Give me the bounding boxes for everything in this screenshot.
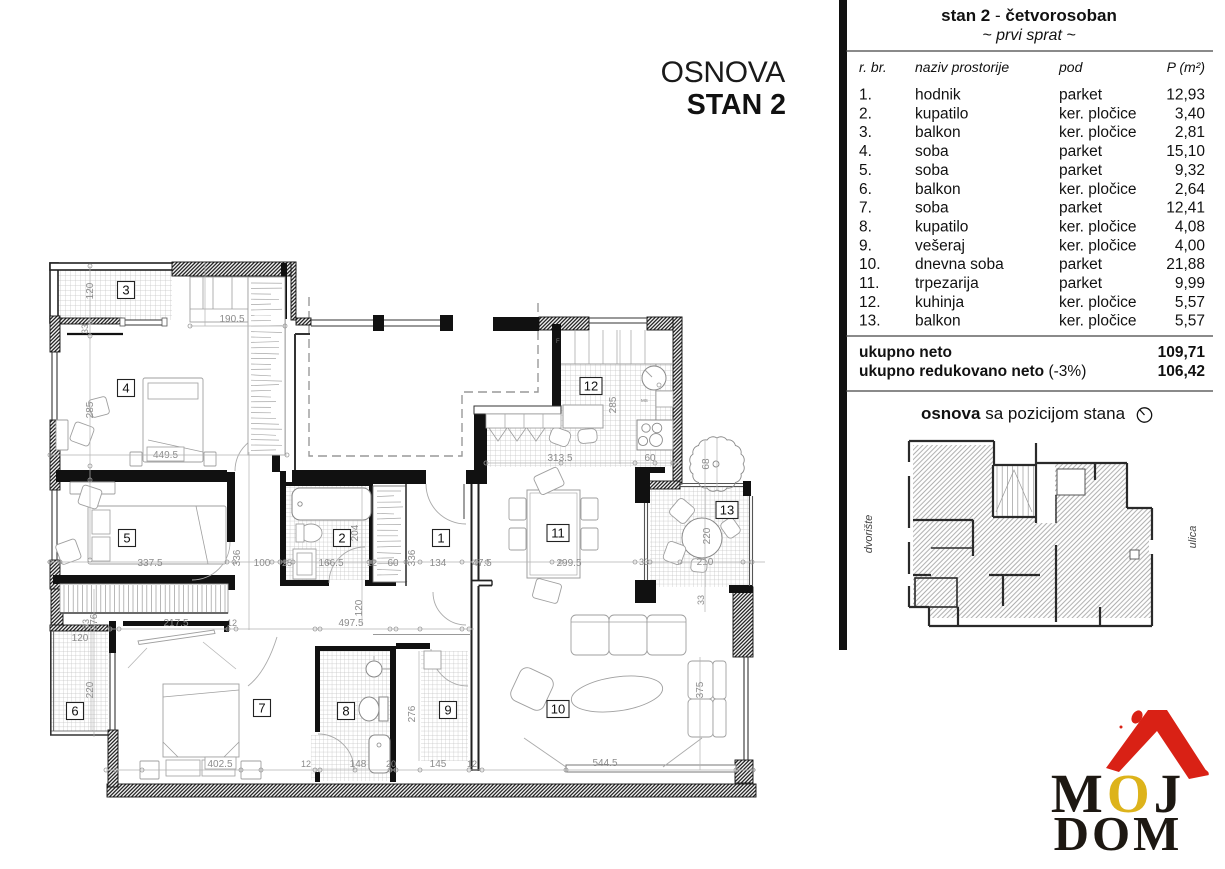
svg-text:7.: 7. [859, 200, 872, 217]
svg-text:3: 3 [122, 283, 129, 298]
svg-text:544.5: 544.5 [592, 758, 617, 769]
svg-text:2,64: 2,64 [1175, 181, 1206, 198]
svg-text:145: 145 [430, 759, 447, 770]
svg-text:4.: 4. [859, 143, 872, 160]
svg-text:ker. pločice: ker. pločice [1059, 124, 1137, 141]
svg-text:60: 60 [644, 453, 656, 464]
svg-text:12.: 12. [859, 294, 881, 311]
svg-text:12: 12 [467, 759, 477, 769]
svg-text:402.5: 402.5 [207, 759, 232, 770]
svg-text:3.: 3. [859, 124, 872, 141]
svg-text:5: 5 [123, 531, 130, 546]
svg-text:kupatilo: kupatilo [915, 219, 968, 236]
svg-text:~ prvi sprat ~: ~ prvi sprat ~ [982, 27, 1075, 44]
svg-text:ukupno redukovano neto (-3%): ukupno redukovano neto (-3%) [859, 363, 1086, 380]
svg-text:STAN 2: STAN 2 [687, 89, 786, 121]
svg-text:DOM: DOM [1054, 806, 1183, 861]
svg-text:21,88: 21,88 [1166, 256, 1205, 273]
svg-text:soba: soba [915, 200, 949, 217]
svg-text:OSNOVA: OSNOVA [661, 56, 786, 89]
svg-text:4: 4 [122, 381, 129, 396]
svg-text:ukupno neto: ukupno neto [859, 344, 952, 361]
svg-text:12,41: 12,41 [1166, 200, 1205, 217]
svg-text:1: 1 [437, 531, 444, 546]
svg-text:F: F [556, 339, 560, 345]
svg-text:4,00: 4,00 [1175, 237, 1206, 254]
svg-text:100: 100 [254, 558, 271, 569]
svg-text:449.5: 449.5 [153, 450, 178, 461]
svg-text:10.: 10. [859, 256, 881, 273]
svg-text:120: 120 [354, 599, 365, 616]
svg-text:ulica: ulica [1187, 526, 1199, 549]
svg-text:parket: parket [1059, 162, 1103, 179]
svg-text:217.5: 217.5 [163, 618, 188, 629]
svg-text:dnevna soba: dnevna soba [915, 256, 1004, 273]
svg-text:12: 12 [227, 618, 237, 628]
svg-text:ker. pločice: ker. pločice [1059, 294, 1137, 311]
svg-text:ker. pločice: ker. pločice [1059, 237, 1137, 254]
svg-text:11.: 11. [859, 275, 879, 292]
svg-text:pod: pod [1058, 59, 1084, 75]
svg-text:120: 120 [72, 633, 89, 644]
svg-text:dvorište: dvorište [863, 515, 875, 554]
svg-text:2.: 2. [859, 105, 872, 122]
svg-text:13.: 13. [859, 313, 881, 330]
svg-text:190.5: 190.5 [219, 314, 244, 325]
svg-text:336: 336 [407, 549, 418, 566]
svg-text:299.5: 299.5 [556, 558, 581, 569]
svg-text:parket: parket [1059, 200, 1103, 217]
svg-text:109,71: 109,71 [1158, 344, 1206, 361]
svg-text:313.5: 313.5 [547, 453, 572, 464]
svg-text:ker. pločice: ker. pločice [1059, 313, 1137, 330]
svg-text:parket: parket [1059, 275, 1103, 292]
svg-text:soba: soba [915, 162, 949, 179]
svg-text:276: 276 [407, 705, 418, 722]
svg-text:ker. pločice: ker. pločice [1059, 219, 1137, 236]
svg-text:12: 12 [367, 558, 377, 568]
svg-text:parket: parket [1059, 87, 1103, 104]
svg-text:9.: 9. [859, 237, 872, 254]
svg-text:vešeraj: vešeraj [915, 237, 965, 254]
svg-text:balkon: balkon [915, 181, 961, 198]
svg-text:hodnik: hodnik [915, 87, 961, 104]
svg-text:5,57: 5,57 [1175, 313, 1205, 330]
svg-text:trpezarija: trpezarija [915, 275, 979, 292]
svg-text:337.5: 337.5 [137, 558, 162, 569]
svg-text:11: 11 [551, 526, 565, 541]
svg-text:25: 25 [282, 558, 292, 568]
svg-text:33: 33 [696, 595, 706, 605]
svg-text:220: 220 [702, 527, 713, 544]
svg-text:8: 8 [342, 704, 349, 719]
svg-text:naziv prostorije: naziv prostorije [915, 59, 1009, 75]
svg-text:60: 60 [387, 558, 399, 569]
svg-text:parket: parket [1059, 143, 1103, 160]
svg-text:13: 13 [720, 503, 734, 518]
svg-text:47.5: 47.5 [472, 558, 492, 569]
svg-text:12: 12 [584, 379, 598, 394]
svg-text:balkon: balkon [915, 124, 961, 141]
svg-text:12,93: 12,93 [1166, 87, 1205, 104]
svg-text:6.: 6. [859, 181, 872, 198]
svg-text:375: 375 [695, 681, 706, 698]
svg-text:9,99: 9,99 [1175, 275, 1205, 292]
svg-text:134: 134 [430, 558, 447, 569]
svg-text:53: 53 [81, 619, 91, 629]
svg-text:5.: 5. [859, 162, 872, 179]
svg-text:8.: 8. [859, 219, 872, 236]
svg-text:7: 7 [258, 701, 265, 716]
svg-text:2,81: 2,81 [1175, 124, 1205, 141]
svg-text:P (m²): P (m²) [1167, 59, 1205, 75]
svg-text:1.: 1. [859, 87, 872, 104]
svg-text:3,40: 3,40 [1175, 105, 1206, 122]
svg-text:kuhinja: kuhinja [915, 294, 964, 311]
svg-text:33: 33 [639, 557, 649, 567]
svg-text:soba: soba [915, 143, 949, 160]
svg-text:r. br.: r. br. [859, 59, 887, 75]
svg-text:4,08: 4,08 [1175, 219, 1205, 236]
svg-text:166.5: 166.5 [318, 558, 343, 569]
svg-text:5,57: 5,57 [1175, 294, 1205, 311]
svg-text:106,42: 106,42 [1158, 363, 1205, 380]
svg-text:stan 2 - četvorosoban: stan 2 - četvorosoban [941, 6, 1117, 25]
svg-text:220: 220 [85, 681, 96, 698]
svg-text:6: 6 [71, 704, 78, 719]
svg-text:285: 285 [608, 396, 619, 413]
svg-text:kupatilo: kupatilo [915, 105, 968, 122]
svg-text:15,10: 15,10 [1166, 143, 1205, 160]
svg-text:68: 68 [701, 458, 712, 470]
svg-text:336: 336 [232, 549, 243, 566]
svg-text:148: 148 [350, 759, 367, 770]
svg-text:osnova sa pozicijom stana: osnova sa pozicijom stana [921, 404, 1126, 423]
svg-text:33: 33 [80, 324, 90, 334]
svg-text:204: 204 [350, 524, 361, 541]
svg-text:parket: parket [1059, 256, 1103, 273]
svg-text:MS: MS [641, 398, 648, 403]
svg-text:120: 120 [85, 282, 96, 299]
svg-text:285: 285 [85, 401, 96, 418]
svg-text:ker. pločice: ker. pločice [1059, 105, 1137, 122]
svg-text:9,32: 9,32 [1175, 162, 1205, 179]
svg-text:12: 12 [301, 759, 311, 769]
svg-text:ker. pločice: ker. pločice [1059, 181, 1137, 198]
svg-text:9: 9 [444, 703, 451, 718]
svg-text:20: 20 [386, 759, 396, 769]
svg-text:10: 10 [551, 702, 565, 717]
svg-text:balkon: balkon [915, 313, 961, 330]
svg-text:2: 2 [338, 531, 345, 546]
svg-text:497.5: 497.5 [338, 618, 363, 629]
